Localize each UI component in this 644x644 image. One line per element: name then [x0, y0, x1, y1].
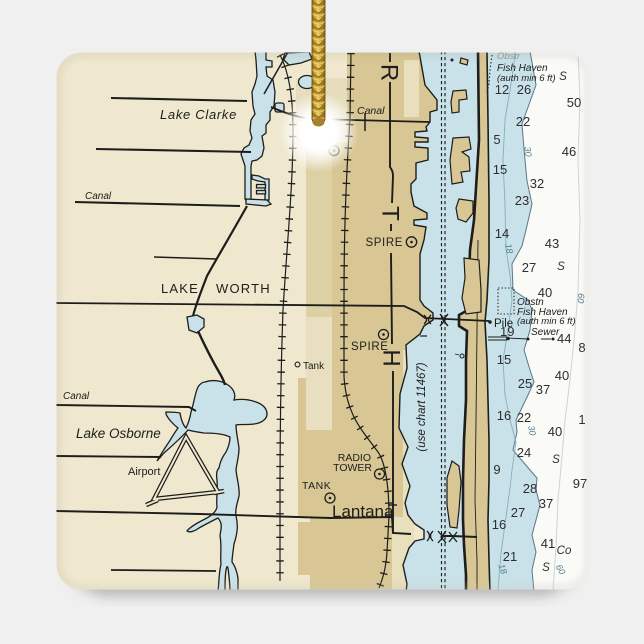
svg-text:22: 22: [517, 410, 531, 425]
svg-text:27: 27: [522, 260, 536, 275]
svg-text:Lake Clarke: Lake Clarke: [160, 107, 237, 122]
svg-text:12: 12: [495, 82, 509, 97]
svg-text:32: 32: [530, 176, 544, 191]
svg-text:26: 26: [517, 82, 531, 97]
svg-text:50: 50: [567, 95, 581, 110]
svg-text:8: 8: [578, 340, 585, 355]
svg-text:15: 15: [493, 162, 507, 177]
svg-text:37: 37: [539, 496, 553, 511]
svg-text:1: 1: [578, 412, 585, 427]
svg-text:41: 41: [541, 536, 555, 551]
svg-text:40: 40: [555, 368, 569, 383]
svg-text:40: 40: [548, 424, 562, 439]
svg-text:16: 16: [492, 517, 506, 532]
svg-text:Canal: Canal: [63, 391, 90, 402]
svg-text:LAKE: LAKE: [161, 281, 199, 296]
svg-text:97: 97: [573, 476, 587, 491]
svg-text:24: 24: [517, 445, 531, 460]
svg-text:Airport: Airport: [128, 466, 160, 478]
svg-text:(use chart 11467): (use chart 11467): [416, 362, 428, 451]
svg-text:Canal: Canal: [357, 105, 385, 117]
svg-text:S: S: [559, 71, 567, 83]
svg-text:30: 30: [522, 146, 533, 157]
svg-text:H: H: [378, 349, 405, 366]
svg-text:37: 37: [536, 382, 550, 397]
svg-text:40: 40: [538, 285, 552, 300]
svg-text:TANK: TANK: [302, 480, 331, 492]
svg-text:27: 27: [511, 505, 525, 520]
svg-text:16: 16: [497, 408, 511, 423]
svg-text:60: 60: [576, 293, 587, 304]
svg-text:Lantana: Lantana: [332, 502, 394, 521]
svg-text:R: R: [376, 64, 403, 81]
svg-text:5: 5: [493, 132, 500, 147]
svg-text:Lake Osborne: Lake Osborne: [76, 426, 161, 441]
svg-text:43: 43: [545, 236, 559, 251]
svg-text:SPIRE: SPIRE: [365, 237, 403, 249]
svg-text:Sewer: Sewer: [531, 327, 560, 338]
svg-text:46: 46: [562, 144, 576, 159]
svg-text:Tank: Tank: [303, 361, 325, 372]
svg-text:44: 44: [557, 331, 571, 346]
svg-text:S: S: [542, 562, 550, 574]
svg-text:21: 21: [503, 549, 517, 564]
svg-text:S: S: [552, 454, 560, 466]
svg-text:(auth min 6 ft): (auth min 6 ft): [517, 316, 576, 327]
svg-text:30: 30: [526, 425, 538, 437]
svg-text:14: 14: [495, 226, 509, 241]
svg-text:S: S: [557, 261, 565, 273]
svg-text:WORTH: WORTH: [216, 281, 271, 296]
svg-text:TOWER: TOWER: [333, 462, 372, 474]
svg-text:15: 15: [497, 352, 511, 367]
svg-text:Canal: Canal: [85, 191, 112, 202]
svg-text:22: 22: [516, 114, 530, 129]
svg-text:9: 9: [493, 462, 500, 477]
svg-text:18: 18: [503, 243, 515, 255]
svg-text:23: 23: [515, 193, 529, 208]
svg-text:28: 28: [523, 481, 537, 496]
svg-text:Co: Co: [557, 545, 572, 557]
svg-text:25: 25: [518, 376, 532, 391]
svg-text:T: T: [377, 206, 404, 221]
svg-text:19: 19: [500, 324, 514, 339]
